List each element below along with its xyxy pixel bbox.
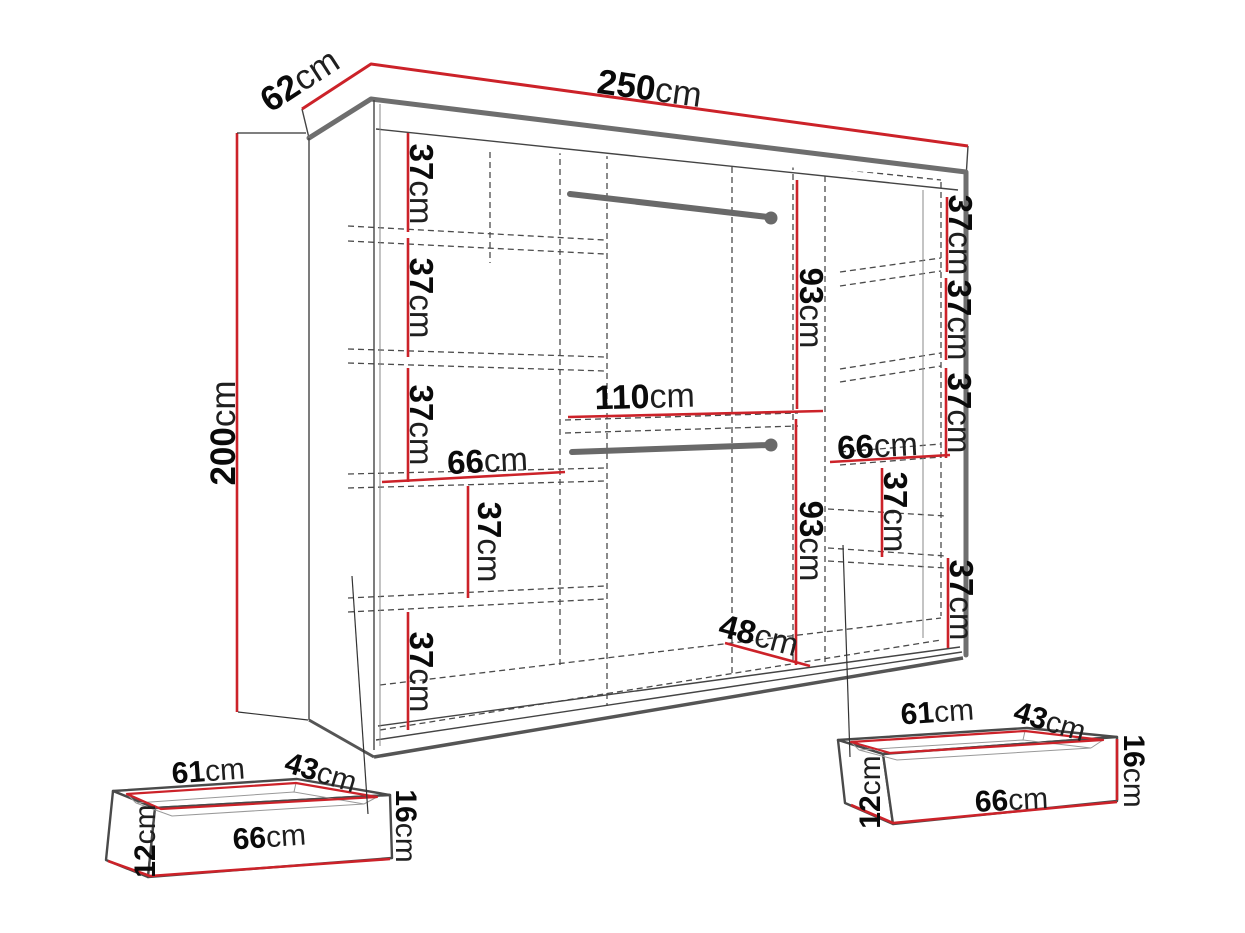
dim-drawer-right-width: 61cm — [900, 694, 975, 732]
dim-drawer-left-width: 61cm — [171, 753, 246, 791]
diagram-canvas: 250cm 62cm 200cm 37cm 37cm 37cm 66cm 37c… — [0, 0, 1245, 933]
dim-right-bay1: 37cm — [942, 195, 979, 276]
dim-drawer-left-height: 16cm — [389, 789, 422, 862]
dim-right-bay2: 37cm — [941, 280, 978, 361]
dim-right-bay3: 37cm — [941, 373, 978, 454]
dim-left-bay1: 37cm — [403, 144, 440, 225]
dim-left-bay2: 37cm — [403, 258, 440, 339]
dim-wardrobe-height: 200cm — [204, 380, 243, 485]
dim-center-upper-hanging: 93cm — [793, 268, 830, 349]
dim-center-lower-hanging: 93cm — [793, 501, 830, 582]
dim-drawer-left-inner-height: 12cm — [129, 804, 162, 877]
dim-right-bay4: 37cm — [877, 472, 914, 553]
dim-center-bottom-depth: 48cm — [715, 607, 803, 664]
wardrobe-dimension-diagram: 250cm 62cm 200cm 37cm 37cm 37cm 66cm 37c… — [0, 0, 1245, 933]
dim-drawer-right-front-width: 66cm — [974, 782, 1049, 819]
dim-drawer-right-height: 16cm — [1117, 734, 1150, 807]
dim-drawer-left-front-width: 66cm — [232, 819, 307, 857]
dim-drawer-right-inner-height: 12cm — [854, 755, 887, 828]
dim-left-bay4: 37cm — [471, 502, 508, 583]
dim-right-shelf-width: 66cm — [836, 425, 919, 466]
lower-hanging-rail — [572, 445, 768, 452]
dim-left-shelf-width: 66cm — [446, 440, 529, 481]
upper-hanging-rail — [570, 194, 768, 217]
dim-center-width: 110cm — [594, 377, 695, 418]
upper-rail-end-knob — [765, 212, 778, 225]
dim-left-bay5: 37cm — [403, 632, 440, 713]
dim-left-bay3: 37cm — [403, 385, 440, 466]
lower-rail-end-knob — [765, 439, 778, 452]
dim-right-bay5: 37cm — [943, 560, 980, 641]
